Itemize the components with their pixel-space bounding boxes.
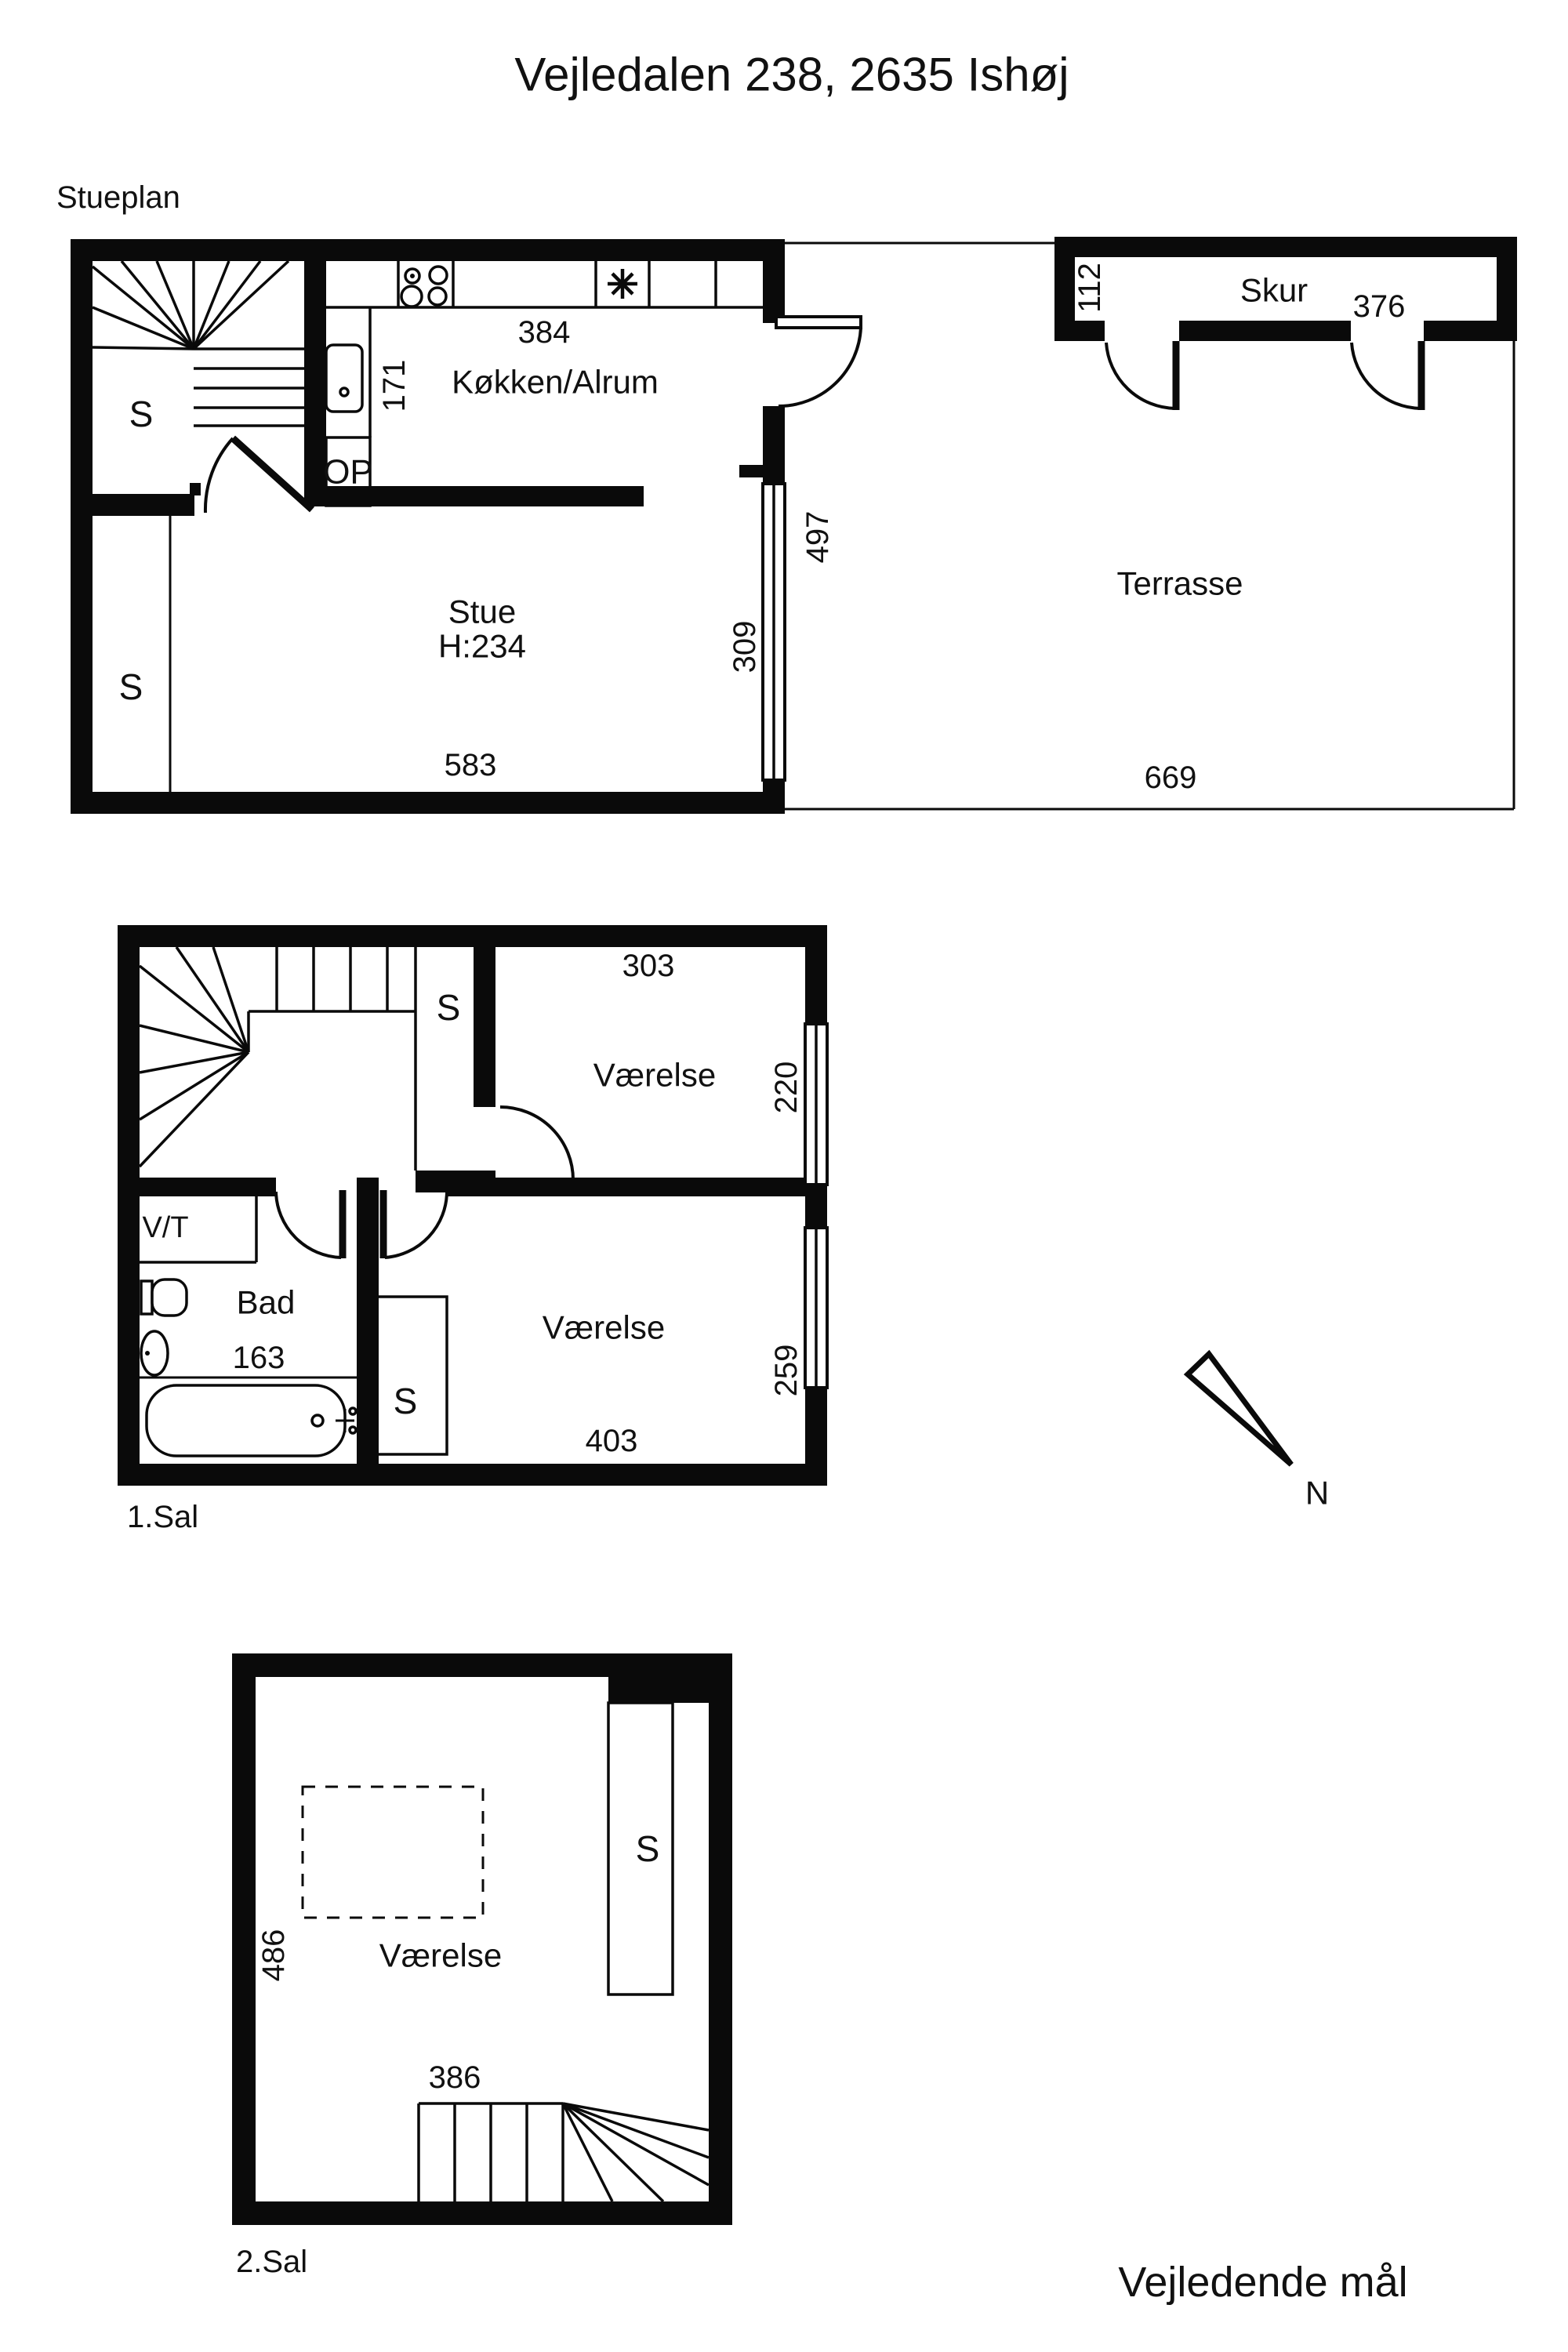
wall-room-divider — [474, 947, 495, 1107]
window-living — [763, 484, 785, 780]
first-floor-label: 1.Sal — [127, 1500, 198, 1534]
bathroom-label: Bad — [237, 1284, 296, 1321]
wc-label: V/T — [142, 1211, 188, 1244]
skylight-dashed-outline — [303, 1787, 483, 1918]
door-arc — [205, 438, 233, 513]
dim-room-width: 386 — [429, 2060, 481, 2095]
wall-right-pier — [805, 1185, 827, 1228]
door-arc — [385, 1192, 447, 1258]
wall-right-lower — [763, 779, 785, 814]
closet-north-label: S — [437, 987, 461, 1028]
dim-living-width: 583 — [445, 748, 497, 782]
shed-label: Skur — [1240, 272, 1308, 309]
door-arc — [1106, 343, 1175, 408]
door-room-south — [383, 1190, 447, 1258]
wall-hall-left — [140, 1178, 276, 1196]
closet-south-box — [377, 1297, 447, 1454]
footer-note: Vejledende mål — [1118, 2259, 1407, 2306]
toilet-icon — [141, 1279, 187, 1316]
wall-notch — [608, 1677, 709, 1703]
door-leaf — [233, 438, 312, 510]
wall-top — [71, 239, 785, 261]
wall-hall-nub — [190, 483, 201, 495]
stove-icon — [401, 267, 447, 307]
wall-left — [232, 1653, 256, 2225]
door-bathroom — [276, 1190, 343, 1258]
door-hall-living — [205, 438, 312, 513]
door-exterior — [776, 317, 861, 406]
floorplan-drawing: Vejledalen 238, 2635 Ishøj Stueplan — [0, 0, 1568, 2352]
terrace-outline — [785, 243, 1514, 809]
door-arc — [1352, 343, 1421, 408]
kitchen-label: Køkken/Alrum — [452, 364, 659, 401]
stueplan-walls — [71, 239, 785, 814]
closet-label: S — [636, 1828, 660, 1869]
door-arc — [276, 1192, 341, 1258]
north-label: N — [1305, 1475, 1329, 1512]
window-room-north — [805, 1024, 827, 1185]
closet-hall-label: S — [129, 394, 154, 434]
door-arc — [779, 328, 861, 406]
stairs-icon — [419, 2103, 709, 2201]
dim-room-depth: 486 — [256, 1929, 291, 1982]
wall-left — [71, 239, 93, 814]
wall-bottom — [118, 1464, 827, 1486]
wall-central — [357, 1178, 379, 1464]
wall-bottom — [232, 2201, 732, 2225]
shed-door-right — [1352, 341, 1421, 410]
north-arrow-icon — [1188, 1354, 1291, 1465]
washbasin-icon — [141, 1331, 168, 1375]
dim-kitchen-depth: 171 — [377, 360, 412, 412]
room-label: Værelse — [379, 1937, 502, 1974]
wall-right-upper — [805, 925, 827, 1024]
dim-shed-depth: 112 — [1073, 263, 1107, 313]
dim-room-south-width: 403 — [586, 1424, 638, 1458]
wall-bottom — [71, 792, 785, 814]
window-room-south — [805, 1228, 827, 1388]
page-title: Vejledalen 238, 2635 Ishøj — [514, 49, 1069, 101]
room-south-label: Værelse — [543, 1309, 665, 1346]
hob-asterisk-icon — [608, 269, 637, 299]
dim-room-north-window: 220 — [769, 1062, 804, 1114]
wall-hall-right — [447, 1178, 805, 1196]
compass: N — [1188, 1354, 1329, 1512]
dim-bathroom-width: 163 — [233, 1341, 285, 1375]
closet-south-label: S — [394, 1381, 418, 1421]
stueplan-label: Stueplan — [56, 180, 180, 215]
wall-right-upper — [763, 239, 785, 323]
bathtub-icon — [147, 1385, 356, 1456]
wall-top — [118, 925, 827, 947]
dim-terrace-depth: 497 — [800, 511, 835, 564]
wall-right — [709, 1653, 732, 2225]
op-label: OP — [323, 453, 373, 492]
dim-kitchen-width: 384 — [518, 315, 571, 350]
room-north-label: Værelse — [593, 1057, 716, 1094]
stairs-icon — [140, 947, 416, 1171]
wall-nub — [739, 465, 763, 477]
stueplan-plan: Stueplan — [56, 180, 1517, 814]
dim-room-south-window: 259 — [769, 1345, 804, 1397]
kitchen-sink-icon — [326, 345, 362, 412]
wall-hall — [93, 494, 194, 516]
shed-door-left — [1106, 341, 1176, 410]
dim-living-window: 309 — [728, 621, 762, 673]
wall-left — [118, 925, 140, 1486]
door-leaf — [776, 317, 861, 328]
stairs-icon — [93, 261, 304, 426]
dim-room-north-width: 303 — [622, 949, 675, 983]
closet-living-label: S — [119, 666, 143, 707]
dim-shed-width: 376 — [1353, 289, 1406, 324]
living-ceiling-label: H:234 — [438, 628, 526, 665]
living-label: Stue — [448, 593, 516, 630]
floorplan-page: Vejledalen 238, 2635 Ishøj Stueplan — [0, 0, 1568, 2352]
wall-right-mid — [763, 406, 785, 485]
first-floor-plan: 303 S Værelse 220 V/T Bad 163 S Værelse … — [118, 925, 827, 1534]
door-arc-room-north — [500, 1107, 573, 1180]
terrace-label: Terrasse — [1116, 565, 1243, 602]
dim-terrace-width: 669 — [1145, 760, 1197, 795]
second-floor-plan: S 486 Værelse 386 2.Sal — [232, 1653, 732, 2279]
second-floor-label: 2.Sal — [236, 2245, 307, 2279]
wall-top — [232, 1653, 732, 1677]
